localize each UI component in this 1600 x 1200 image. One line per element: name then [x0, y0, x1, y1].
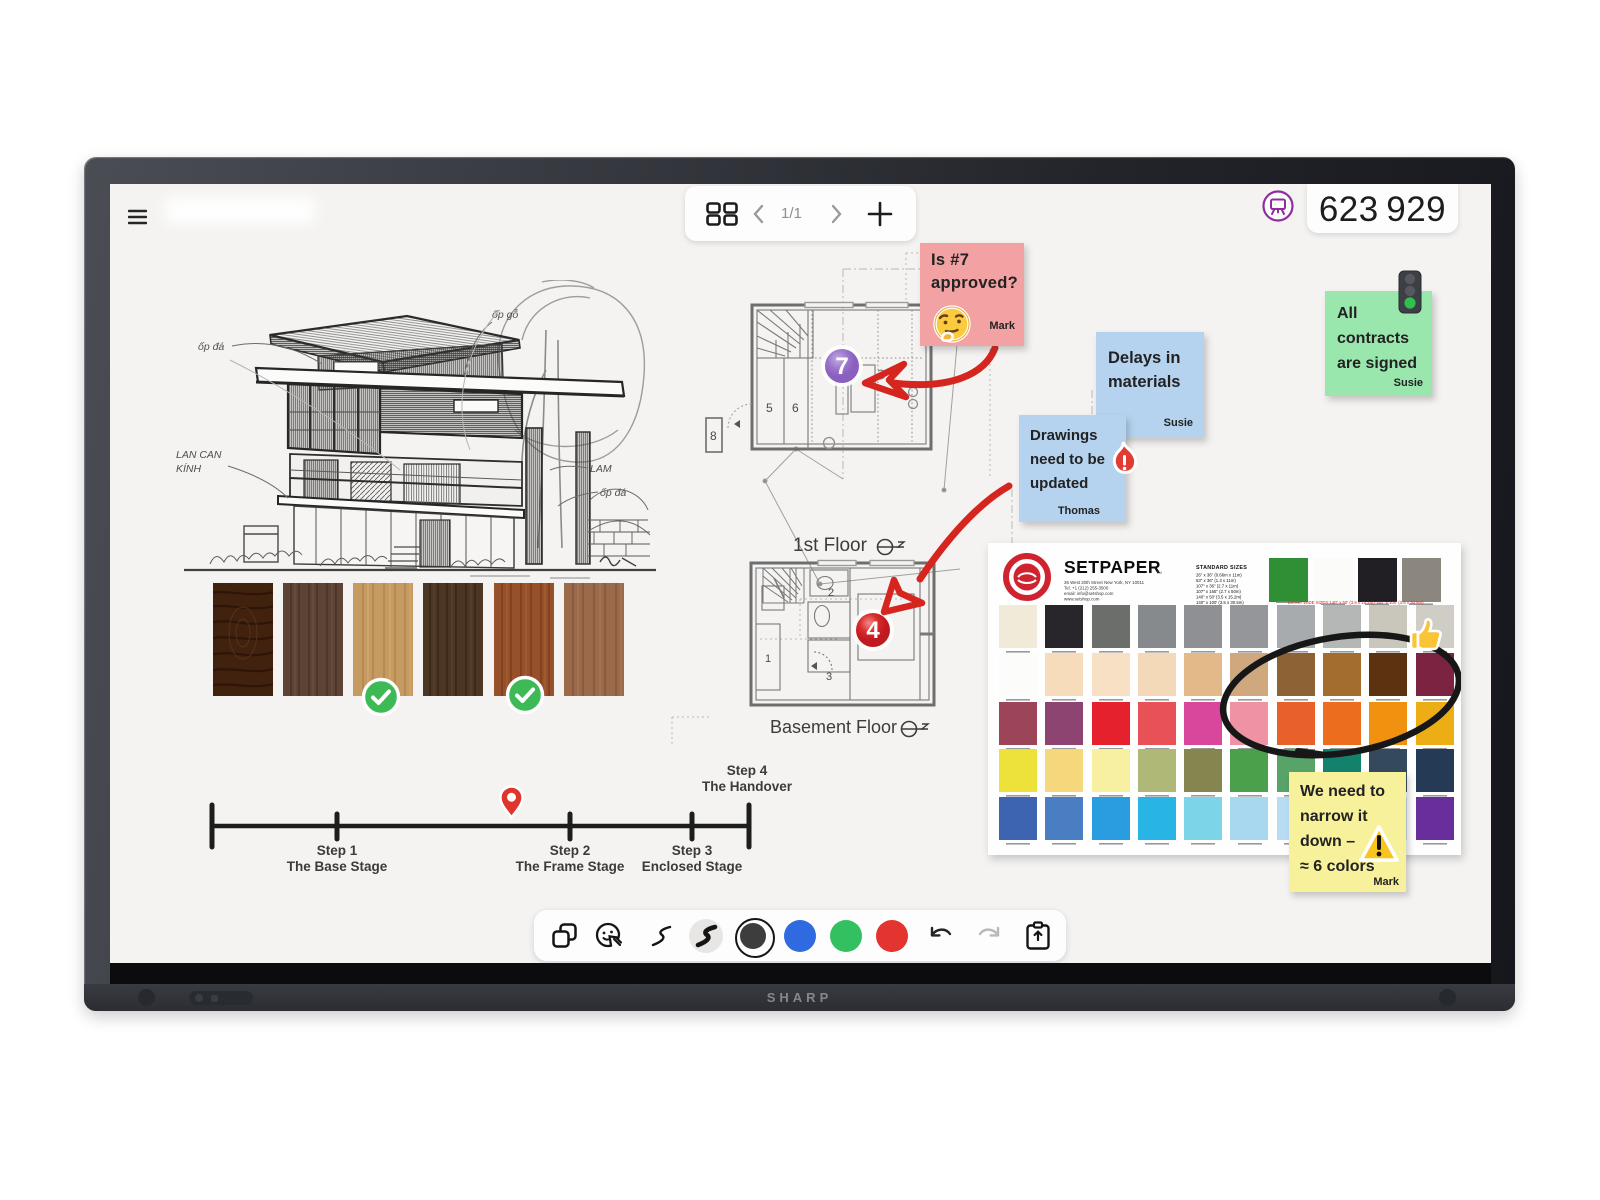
- svg-text:6: 6: [792, 401, 799, 415]
- svg-text:36 West 20th Street New York,: 36 West 20th Street New York, NY 10011: [1064, 580, 1145, 585]
- svg-text:2: 2: [828, 587, 834, 599]
- svg-text:8: 8: [710, 429, 717, 443]
- svg-text:53" x 36" (1.3 x 11m): 53" x 36" (1.3 x 11m): [1196, 578, 1236, 583]
- svg-text:1: 1: [765, 653, 771, 665]
- svg-text:SETPAPER: SETPAPER: [1064, 557, 1161, 577]
- svg-text:ốp đá: ốp đá: [198, 341, 224, 353]
- svg-text:Tel. +1 (212) 255-3500: Tel. +1 (212) 255-3500: [1064, 586, 1109, 591]
- svg-text:TM: TM: [1156, 570, 1162, 575]
- svg-text:107" x 165" (2.7 x 50m): 107" x 165" (2.7 x 50m): [1196, 589, 1241, 594]
- svg-text:www.setshop.com: www.setshop.com: [1064, 597, 1100, 602]
- svg-text:EXTRA WIDE SIZES 140" x 50': EXTRA WIDE SIZES 140" x 50' (3.5 x 15.2m…: [1288, 600, 1424, 605]
- svg-text:KÍNH: KÍNH: [176, 462, 202, 475]
- svg-text:5: 5: [766, 401, 773, 415]
- svg-text:STANDARD SIZES: STANDARD SIZES: [1196, 565, 1247, 571]
- svg-text:LAM: LAM: [590, 463, 612, 475]
- svg-text:26" x 36" (0.66m x 11m): 26" x 36" (0.66m x 11m): [1196, 573, 1242, 578]
- svg-text:LAN CAN: LAN CAN: [176, 449, 222, 461]
- svg-text:107" x 36" (2.7 x 11m): 107" x 36" (2.7 x 11m): [1196, 584, 1239, 589]
- svg-text:ốp đá: ốp đá: [600, 487, 626, 499]
- svg-text:140" x 50' (3.5 x 15.2m): 140" x 50' (3.5 x 15.2m): [1196, 595, 1242, 600]
- svg-text:email: info@setshop.com: email: info@setshop.com: [1064, 591, 1114, 596]
- svg-text:140" x 100' (3.5 x 30.5m): 140" x 100' (3.5 x 30.5m): [1196, 600, 1244, 605]
- svg-text:3: 3: [826, 671, 832, 683]
